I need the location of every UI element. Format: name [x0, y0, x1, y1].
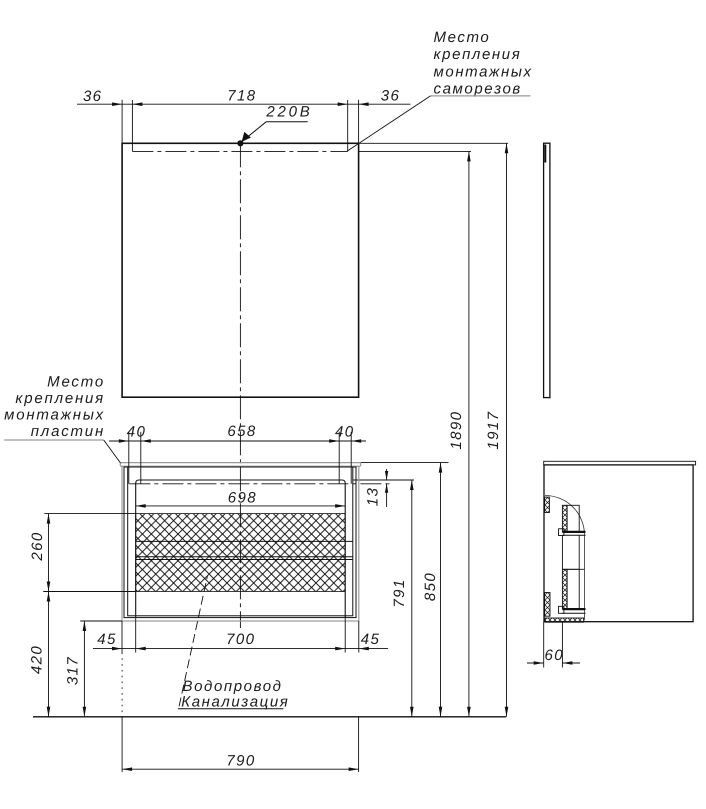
svg-text:40: 40	[127, 424, 147, 441]
svg-text:пластин: пластин	[31, 423, 105, 440]
svg-text:крепления: крепления	[15, 390, 105, 407]
svg-text:саморезов: саморезов	[434, 80, 522, 97]
svg-text:45: 45	[361, 631, 381, 648]
svg-text:36: 36	[381, 87, 401, 104]
svg-text:монтажных: монтажных	[434, 63, 533, 80]
svg-text:крепления: крепления	[434, 46, 522, 63]
svg-text:монтажных: монтажных	[4, 406, 105, 423]
svg-text:658: 658	[227, 423, 256, 440]
svg-text:60: 60	[545, 647, 565, 664]
svg-text:220В: 220В	[265, 104, 312, 121]
svg-text:Водопровод: Водопровод	[183, 678, 283, 695]
svg-text:36: 36	[83, 88, 103, 105]
svg-text:13: 13	[365, 487, 382, 507]
svg-text:790: 790	[226, 752, 255, 769]
svg-text:Место: Место	[47, 374, 105, 391]
svg-text:40: 40	[335, 424, 355, 441]
svg-text:791: 791	[391, 578, 408, 607]
svg-text:700: 700	[226, 631, 255, 648]
svg-text:698: 698	[228, 489, 257, 506]
svg-text:260: 260	[29, 531, 46, 561]
svg-text:317: 317	[65, 656, 82, 685]
svg-text:Канализация: Канализация	[181, 694, 289, 711]
svg-text:Место: Место	[434, 29, 491, 46]
svg-text:850: 850	[422, 572, 439, 601]
svg-text:718: 718	[227, 87, 256, 104]
svg-text:1890: 1890	[448, 411, 465, 450]
svg-text:1917: 1917	[485, 411, 502, 450]
svg-text:420: 420	[29, 645, 46, 674]
svg-text:45: 45	[97, 631, 117, 648]
